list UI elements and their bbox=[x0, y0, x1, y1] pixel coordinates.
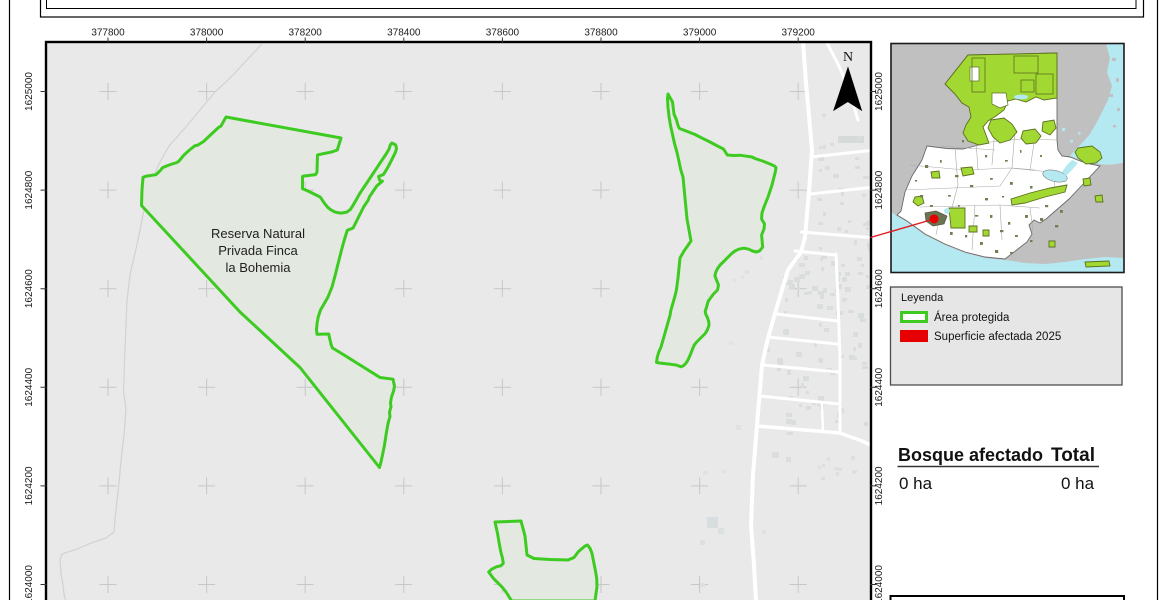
svg-text:1625000: 1625000 bbox=[874, 72, 885, 111]
svg-text:Privada Finca: Privada Finca bbox=[218, 243, 298, 258]
svg-text:1624600: 1624600 bbox=[874, 269, 885, 308]
svg-text:Bosque afectado: Bosque afectado bbox=[898, 445, 1043, 465]
svg-text:378600: 378600 bbox=[486, 28, 520, 39]
svg-text:379200: 379200 bbox=[782, 28, 816, 39]
svg-text:379000: 379000 bbox=[683, 28, 717, 39]
svg-text:0 ha: 0 ha bbox=[899, 474, 933, 493]
svg-text:Reserva Natural: Reserva Natural bbox=[211, 226, 305, 241]
svg-text:1624200: 1624200 bbox=[24, 466, 35, 505]
svg-text:1624600: 1624600 bbox=[24, 269, 35, 308]
svg-text:la Bohemia: la Bohemia bbox=[225, 260, 291, 275]
svg-text:Total: Total bbox=[1051, 445, 1095, 466]
svg-text:Leyenda: Leyenda bbox=[901, 292, 944, 304]
svg-text:Área protegida: Área protegida bbox=[934, 311, 1010, 324]
svg-text:1624000: 1624000 bbox=[874, 565, 885, 600]
svg-text:378000: 378000 bbox=[190, 28, 224, 39]
svg-text:377800: 377800 bbox=[91, 28, 125, 39]
svg-text:1624800: 1624800 bbox=[874, 170, 885, 209]
svg-text:1624200: 1624200 bbox=[874, 466, 885, 505]
svg-text:1624000: 1624000 bbox=[24, 565, 35, 600]
svg-text:1625000: 1625000 bbox=[24, 72, 35, 111]
svg-text:Superficie afectada 2025: Superficie afectada 2025 bbox=[934, 331, 1061, 343]
svg-text:378400: 378400 bbox=[387, 28, 421, 39]
svg-text:1624400: 1624400 bbox=[24, 367, 35, 406]
svg-text:378200: 378200 bbox=[289, 28, 323, 39]
svg-text:1624800: 1624800 bbox=[24, 170, 35, 209]
svg-text:0 ha: 0 ha bbox=[1061, 474, 1095, 493]
svg-text:N: N bbox=[843, 50, 853, 65]
svg-text:1624400: 1624400 bbox=[874, 367, 885, 406]
svg-text:378800: 378800 bbox=[584, 28, 618, 39]
